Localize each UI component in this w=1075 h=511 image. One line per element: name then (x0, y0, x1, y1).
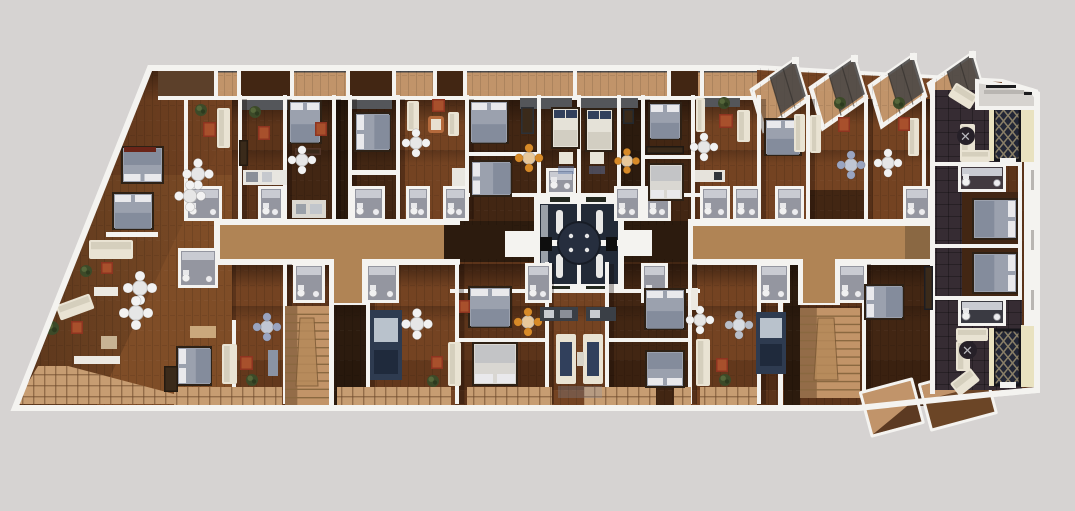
svg-text:✕: ✕ (960, 129, 971, 144)
svg-text:✕: ✕ (962, 343, 973, 358)
